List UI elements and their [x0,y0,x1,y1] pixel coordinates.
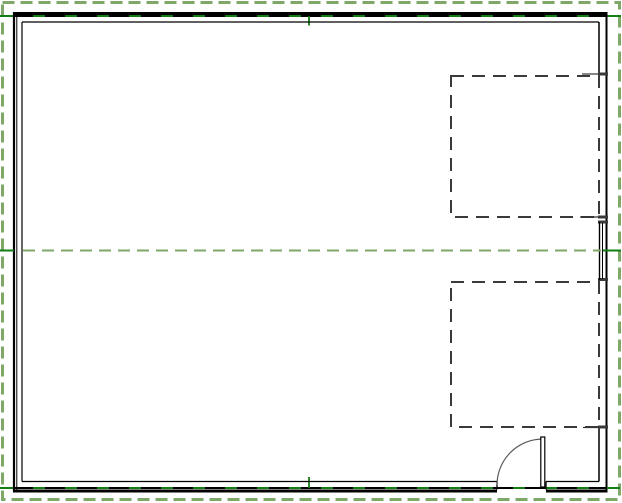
bottom-wall-left[interactable] [13,490,497,493]
floor-plan-view [0,0,622,503]
lower-hidden-opening-outline[interactable] [451,282,599,427]
top-wall[interactable] [13,12,607,16]
bottom-wall-right[interactable] [546,490,607,493]
door-leaf[interactable] [541,437,545,487]
opening-upper-sill-jamb-cap [598,216,608,219]
door-swing-arc[interactable] [497,439,543,485]
upper-hidden-opening-outline[interactable] [451,76,599,217]
floor-plan-svg[interactable] [0,0,622,503]
opening-upper-head-jamb-cap [598,73,608,76]
opening-lower-sill-jamb-cap [598,426,608,429]
